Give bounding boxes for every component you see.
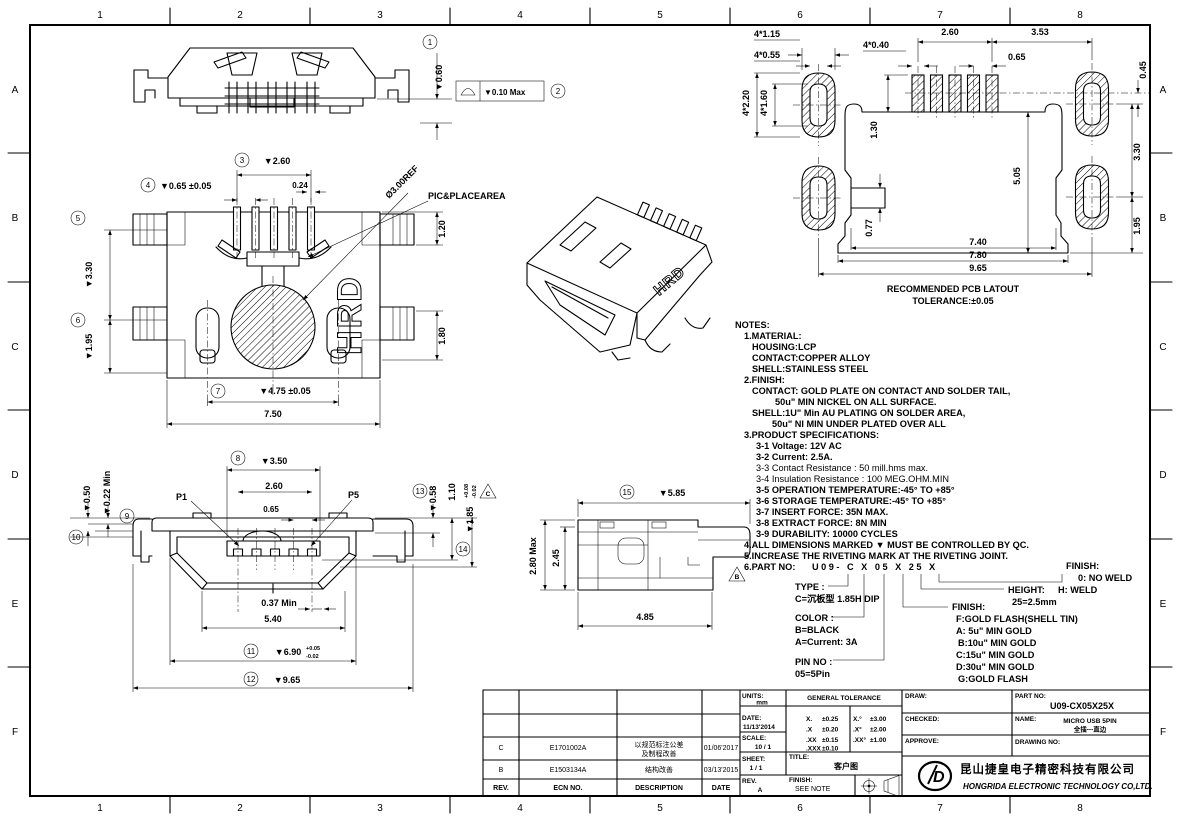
pcb-caption-line2: TOLERANCE:±0.05: [912, 296, 993, 306]
svg-text:1: 1: [97, 803, 103, 814]
svg-text:B=BLACK: B=BLACK: [795, 625, 840, 635]
dim-row-offset: 0.45: [1138, 61, 1148, 79]
svg-text:SEE NOTE: SEE NOTE: [795, 786, 831, 793]
svg-text:8: 8: [236, 454, 241, 463]
svg-text:9: 9: [125, 512, 130, 521]
dim-contact-span: 2.60: [265, 481, 283, 491]
flatness-callout: ▼0.10 Max 2: [456, 81, 565, 101]
company-name-en: HONGRIDA ELECTRONIC TECHNOLOGY CO,LTD.: [963, 782, 1153, 791]
flag-c: C: [480, 484, 496, 498]
dim-pad-ih: 4*1.60: [759, 90, 769, 116]
dim-tongue-width: ▼3.50: [261, 456, 287, 466]
svg-text:15: 15: [623, 488, 632, 497]
dim-contact-pitch: 0.65: [263, 505, 279, 514]
dim-w1: 7.40: [969, 237, 987, 247]
svg-text:及制程改善: 及制程改善: [642, 749, 677, 758]
dim-row-gap: 3.30: [1132, 143, 1142, 161]
svg-text:.XXX: .XXX: [806, 746, 821, 753]
svg-text:±1.00: ±1.00: [870, 737, 887, 744]
svg-text:±0.20: ±0.20: [822, 727, 839, 734]
engineering-drawing-sheet: 12345678 12345678 ABCDEF ABCDEF ▼0.60 1 …: [0, 0, 1177, 821]
balloon-7: 7: [211, 384, 225, 398]
balloon-15: 15: [620, 485, 634, 499]
dim-hole-h: 1.30: [869, 121, 879, 139]
dim-depth: 5.05: [1012, 167, 1022, 185]
drawing-frame: [8, 8, 1172, 813]
approve-label: APPROVE:: [905, 738, 939, 745]
svg-text:C=沉板型 1.85H DIP: C=沉板型 1.85H DIP: [795, 593, 880, 604]
dim-step-min: ▼0.22 Min: [102, 471, 112, 515]
svg-text:H: WELD: H: WELD: [1058, 585, 1098, 595]
dim-step-left: ▼0.50: [82, 486, 92, 512]
svg-text:C: C: [11, 342, 18, 353]
svg-text:4: 4: [517, 10, 523, 21]
svg-text:±2.00: ±2.00: [870, 727, 887, 734]
profile-symbol: [461, 89, 475, 96]
svg-text:1.MATERIAL:: 1.MATERIAL:: [744, 331, 802, 341]
svg-text:50u" MIN NICKEL ON ALL SURFACE: 50u" MIN NICKEL ON ALL SURFACE.: [775, 397, 936, 407]
checked-label: CHECKED:: [905, 716, 939, 723]
svg-text:+0.08: +0.08: [464, 484, 470, 498]
svg-text:4: 4: [146, 181, 151, 190]
svg-text:3-3 Contact Resistance : 50 mi: 3-3 Contact Resistance : 50 mill.hms max…: [756, 463, 928, 473]
pcb-layout-view: 4*1.15 4*0.55 4*0.40 2.60 3.53 0.65 0.45…: [741, 27, 1150, 306]
svg-text:3-2 Current: 2.5A.: 3-2 Current: 2.5A.: [756, 452, 833, 462]
dim-rear-height: ▼0.60: [434, 65, 444, 91]
grid-labels: 12345678 12345678 ABCDEF ABCDEF: [11, 10, 1166, 814]
svg-text:A: A: [1160, 85, 1167, 96]
dim-pitch: 0.65: [1008, 52, 1026, 62]
svg-text:E: E: [12, 599, 19, 610]
svg-text:C: C: [498, 745, 503, 752]
svg-text:HOUSING:LCP: HOUSING:LCP: [752, 342, 816, 352]
svg-text:25=2.5mm: 25=2.5mm: [1012, 597, 1057, 607]
svg-text:8: 8: [1077, 803, 1083, 814]
rear-view: ▼0.60 1 ▼0.10 Max 2: [134, 35, 565, 140]
dim-height-max: 2.80 Max: [528, 537, 538, 575]
svg-text:.X: .X: [806, 727, 813, 734]
svg-text:±3.00: ±3.00: [870, 716, 887, 723]
svg-text:8: 8: [1077, 10, 1083, 21]
svg-text:3-5 OPERATION TEMPERATURE:-45°: 3-5 OPERATION TEMPERATURE:-45° TO +85°: [756, 485, 955, 495]
name-label: NAME:: [1015, 716, 1036, 723]
legend-weld-label: FINISH:: [1066, 561, 1099, 571]
dim-step: 0.77: [864, 219, 874, 237]
svg-text:5.INCREASE THE RIVETING MARK A: 5.INCREASE THE RIVETING MARK AT THE RIVE…: [744, 551, 1008, 561]
svg-text:2: 2: [237, 10, 243, 21]
svg-text:-0.02: -0.02: [306, 654, 319, 660]
svg-text:CONTACT: GOLD PLATE ON CONTACT: CONTACT: GOLD PLATE ON CONTACT AND SOLDE…: [752, 386, 1010, 396]
svg-text:DESCRIPTION: DESCRIPTION: [635, 785, 683, 792]
svg-text:+0.05: +0.05: [306, 646, 320, 652]
svg-text:11/13'2014: 11/13'2014: [743, 724, 775, 731]
dim-pin-span: ▼2.60: [264, 156, 290, 166]
svg-text:B:10u" MIN GOLD: B:10u" MIN GOLD: [958, 638, 1037, 648]
svg-text:3-4 Insulation Resistance : 10: 3-4 Insulation Resistance : 100 MEG.OHM.…: [756, 474, 949, 484]
svg-text:B: B: [1160, 213, 1167, 224]
svg-text:B: B: [12, 213, 19, 224]
svg-text:F: F: [12, 727, 18, 738]
svg-text:6: 6: [76, 316, 81, 325]
svg-text:±0.10: ±0.10: [822, 746, 839, 753]
svg-text:MICRO USB 5PIN: MICRO USB 5PIN: [1063, 718, 1117, 725]
dim-body-width: 7.50: [264, 409, 282, 419]
notes-block: NOTES: 1.MATERIAL: HOUSING:LCP CONTACT:C…: [735, 320, 1029, 572]
partno-label: PART NO:: [1015, 693, 1046, 700]
projection-symbols: [861, 776, 899, 797]
dim-overall-width: ▼9.65: [274, 675, 300, 685]
svg-text:7: 7: [937, 803, 943, 814]
svg-text:以规范标注公差: 以规范标注公差: [635, 740, 684, 749]
dim-w3: 9.65: [969, 263, 987, 273]
front-view: 8 ▼3.50 2.60 0.65 P1 P5 ▼0.50 ▼0.22 Min …: [69, 451, 496, 692]
partno-value: U09-CX05X25X: [1050, 701, 1114, 711]
dim-pick-dia: Ø3.00REF: [383, 163, 420, 200]
part-no-code: U09- C X 05 X 25 X: [812, 562, 938, 572]
svg-text:X.°: X.°: [853, 715, 862, 723]
dim-w2: 7.80: [969, 250, 987, 260]
dim-edge-mid: 1.80: [437, 327, 447, 345]
svg-text:E1701002A: E1701002A: [550, 745, 587, 752]
dim-pad-w: 4*1.15: [754, 29, 780, 39]
pcb-caption-line1: RECOMMENDED PCB LATOUT: [887, 284, 1020, 294]
svg-text:4.ALL DIMENSIONS MARKED ▼ MUST: 4.ALL DIMENSIONS MARKED ▼ MUST BE CONTRO…: [744, 540, 1029, 550]
balloon-3: 3: [235, 153, 249, 167]
balloon-6: 6: [71, 313, 85, 327]
svg-text:A=Current: 3A: A=Current: 3A: [795, 637, 858, 647]
svg-text:3.PRODUCT SPECIFICATIONS:: 3.PRODUCT SPECIFICATIONS:: [744, 430, 879, 440]
svg-text:0: NO WELD: 0: NO WELD: [1078, 573, 1132, 583]
dim-pin-pitch: ▼0.65 ±0.05: [160, 181, 211, 191]
scale-label: SCALE:: [742, 735, 766, 742]
legend-pin-label: PIN NO :: [795, 657, 832, 667]
balloon-5: 5: [71, 211, 85, 225]
svg-text:D: D: [1159, 470, 1166, 481]
svg-text:E: E: [1160, 599, 1167, 610]
svg-text:7: 7: [937, 10, 943, 21]
drawing-no-label: DRAWING NO:: [1015, 739, 1060, 746]
drawing-canvas: 12345678 12345678 ABCDEF ABCDEF ▼0.60 1 …: [0, 0, 1177, 821]
svg-text:3-8 EXTRACT FORCE: 8N MIN: 3-8 EXTRACT FORCE: 8N MIN: [756, 518, 887, 528]
svg-text:2: 2: [556, 87, 561, 96]
dim-upper-height: ▼3.30: [84, 262, 94, 288]
drawing-title: 客户图: [833, 761, 858, 771]
svg-text:ECN NO.: ECN NO.: [553, 785, 582, 792]
svg-text:3-7 INSERT FORCE: 35N MAX.: 3-7 INSERT FORCE: 35N MAX.: [756, 507, 888, 517]
dim-shell-height: ▼1.85 +0.08 -0.02: [464, 484, 478, 533]
hrd-marking: HRD: [331, 275, 369, 355]
dim-gap-min: 0.37 Min: [261, 598, 297, 608]
svg-text:03/13'2015: 03/13'2015: [704, 767, 739, 774]
pin-label-p1: P1: [176, 492, 187, 502]
svg-text:11: 11: [247, 647, 256, 656]
isometric-view: HRD: [527, 197, 712, 360]
dim-edge-top: 1.20: [437, 220, 447, 238]
dim-edge-gap: 1.95: [1132, 217, 1142, 235]
legend-type-label: TYPE :: [795, 582, 825, 592]
dim-base-length: 4.85: [636, 612, 654, 622]
svg-text:G:GOLD FLASH: G:GOLD FLASH: [958, 674, 1028, 684]
svg-text:6: 6: [797, 10, 803, 21]
balloon-13: 13: [413, 484, 427, 498]
svg-text:.X°: .X°: [853, 726, 862, 734]
svg-text:全插---直边: 全插---直边: [1073, 725, 1107, 734]
svg-text:C:15u" MIN GOLD: C:15u" MIN GOLD: [956, 650, 1035, 660]
tolerance-header: GENERAL TOLERANCE: [807, 695, 881, 702]
svg-text:C: C: [1159, 342, 1166, 353]
svg-text:B: B: [735, 574, 740, 581]
balloon-14: 14: [456, 542, 470, 556]
svg-text:REV.: REV.: [493, 785, 509, 792]
balloon-2: 2: [551, 84, 565, 98]
dim-pad-offset: 3.53: [1031, 27, 1049, 37]
notes-title: NOTES:: [735, 320, 770, 330]
pick-place-label: PIC&PLACEAREA: [428, 191, 506, 201]
legend-color-label: COLOR :: [795, 613, 834, 623]
svg-text:SHELL:1U" Min AU PLATING ON SO: SHELL:1U" Min AU PLATING ON SOLDER AREA,: [752, 408, 965, 418]
dim-hole-w: 4*0.40: [863, 40, 889, 50]
svg-text:3: 3: [377, 10, 383, 21]
svg-text:D: D: [933, 769, 945, 786]
svg-text:01/06'2017: 01/06'2017: [704, 745, 739, 752]
svg-text:±0.25: ±0.25: [822, 716, 839, 723]
svg-text:10 / 1: 10 / 1: [755, 744, 772, 751]
sheet-label: SHEET:: [742, 756, 765, 763]
svg-text:5: 5: [657, 10, 663, 21]
balloon-9: 9: [120, 509, 134, 523]
svg-text:D: D: [11, 470, 18, 481]
side-view: 15 ▼5.85 2.80 Max 2.45 4.85 B: [528, 485, 750, 630]
balloon-4: 4: [141, 178, 155, 192]
svg-text:C: C: [486, 491, 491, 498]
dim-pitch-span: 2.60: [941, 27, 959, 37]
svg-text:.XX°: .XX°: [853, 736, 866, 744]
svg-text:F: F: [1160, 727, 1166, 738]
solder-tails: [234, 198, 315, 258]
dim-height: 2.45: [551, 549, 561, 567]
bottom-view: HRD Ø3.00REF PIC&PLACEAREA 3 ▼2.60 0.24 …: [71, 153, 506, 428]
dim-pin-width: 0.24: [292, 181, 308, 190]
date-label: DATE:: [742, 715, 761, 722]
part-no-label: 6.PART NO:: [744, 562, 795, 572]
svg-text:1: 1: [97, 10, 103, 21]
dim-flatness: ▼0.10 Max: [484, 88, 526, 97]
balloon-1: 1: [423, 35, 437, 49]
svg-text:B: B: [499, 767, 504, 774]
svg-text:3: 3: [377, 803, 383, 814]
svg-text:3-9 DURABILITY: 10000 CYCLES: 3-9 DURABILITY: 10000 CYCLES: [756, 529, 898, 539]
svg-text:10: 10: [72, 533, 81, 542]
part-number-legend: TYPE : C=沉板型 1.85H DIP COLOR : B=BLACK A…: [795, 561, 1132, 684]
svg-text:A: A: [758, 787, 763, 794]
svg-text:6: 6: [797, 803, 803, 814]
svg-text:50u" NI MIN UNDER PLATED OVER: 50u" NI MIN UNDER PLATED OVER ALL: [772, 419, 946, 429]
svg-text:CONTACT:COPPER ALLOY: CONTACT:COPPER ALLOY: [752, 353, 870, 363]
svg-text:13: 13: [416, 487, 425, 496]
svg-text:▼1.85: ▼1.85: [465, 507, 475, 533]
rev-label: REV.: [742, 778, 757, 785]
hrd-marking-iso: HRD: [651, 263, 689, 299]
pin-label-p5: P5: [348, 490, 359, 500]
svg-text:2: 2: [237, 803, 243, 814]
finish-label: FINISH:: [789, 777, 812, 784]
flag-b: B: [729, 567, 745, 581]
legend-height-label: HEIGHT:: [1008, 585, 1045, 595]
svg-text:A: A: [12, 85, 19, 96]
svg-text:E1503134A: E1503134A: [550, 767, 587, 774]
svg-text:X.: X.: [806, 716, 812, 723]
dim-pad-h: 4*2.20: [741, 90, 751, 116]
svg-text:F:GOLD FLASH(SHELL TIN): F:GOLD FLASH(SHELL TIN): [956, 614, 1078, 624]
title-block: C E1701002A 以规范标注公差 及制程改善 01/06'2017 B E…: [483, 690, 1153, 797]
svg-text:5: 5: [657, 803, 663, 814]
dim-lower-height: ▼1.95: [84, 334, 94, 360]
balloon-8: 8: [231, 451, 245, 465]
svg-text:7: 7: [216, 387, 221, 396]
svg-text:4: 4: [517, 803, 523, 814]
svg-text:1: 1: [428, 38, 433, 47]
svg-text:.XX: .XX: [806, 737, 817, 744]
draw-label: DRAW:: [905, 693, 927, 700]
legend-finish-label: FINISH:: [952, 602, 985, 612]
dim-post-span: ▼4.75 ±0.05: [259, 386, 310, 396]
company-name-cn: 昆山捷皇电子精密科技有限公司: [960, 762, 1135, 776]
dim-pad-iw: 4*0.55: [754, 50, 780, 60]
dim-tongue-drop: 1.10: [447, 483, 457, 501]
balloon-11: 11: [244, 644, 258, 658]
svg-text:2.FINISH:: 2.FINISH:: [744, 375, 785, 385]
tolerance-table: X.±0.25X.°±3.00 .X±0.20.X°±2.00 .XX±0.15…: [806, 715, 887, 753]
svg-text:A: 5u" MIN GOLD: A: 5u" MIN GOLD: [956, 626, 1032, 636]
svg-text:1 / 1: 1 / 1: [750, 765, 763, 772]
title-label: TITLE:: [789, 754, 809, 761]
svg-text:14: 14: [459, 545, 468, 554]
svg-text:12: 12: [247, 675, 256, 684]
svg-text:-0.02: -0.02: [472, 485, 478, 498]
svg-text:mm: mm: [756, 700, 768, 707]
dim-opening-width: 5.40: [264, 614, 282, 624]
dim-length: ▼5.85: [659, 488, 685, 498]
svg-text:3-6 STORAGE TEMPERATURE:-45° T: 3-6 STORAGE TEMPERATURE:-45° TO +85°: [756, 496, 946, 506]
company-logo: D: [919, 762, 951, 790]
svg-text:±0.15: ±0.15: [822, 737, 839, 744]
dim-shell-width: ▼6.90: [275, 647, 301, 657]
svg-text:05=5Pin: 05=5Pin: [795, 669, 830, 679]
svg-text:DATE: DATE: [712, 785, 731, 792]
svg-text:3: 3: [240, 156, 245, 165]
svg-text:D:30u" MIN GOLD: D:30u" MIN GOLD: [956, 662, 1035, 672]
svg-text:5: 5: [76, 214, 81, 223]
balloon-12: 12: [244, 672, 258, 686]
svg-text:3-1 Voltage: 12V AC: 3-1 Voltage: 12V AC: [756, 441, 842, 451]
svg-text:SHELL:STAINLESS STEEL: SHELL:STAINLESS STEEL: [752, 364, 869, 374]
svg-text:结构改善: 结构改善: [645, 765, 673, 774]
